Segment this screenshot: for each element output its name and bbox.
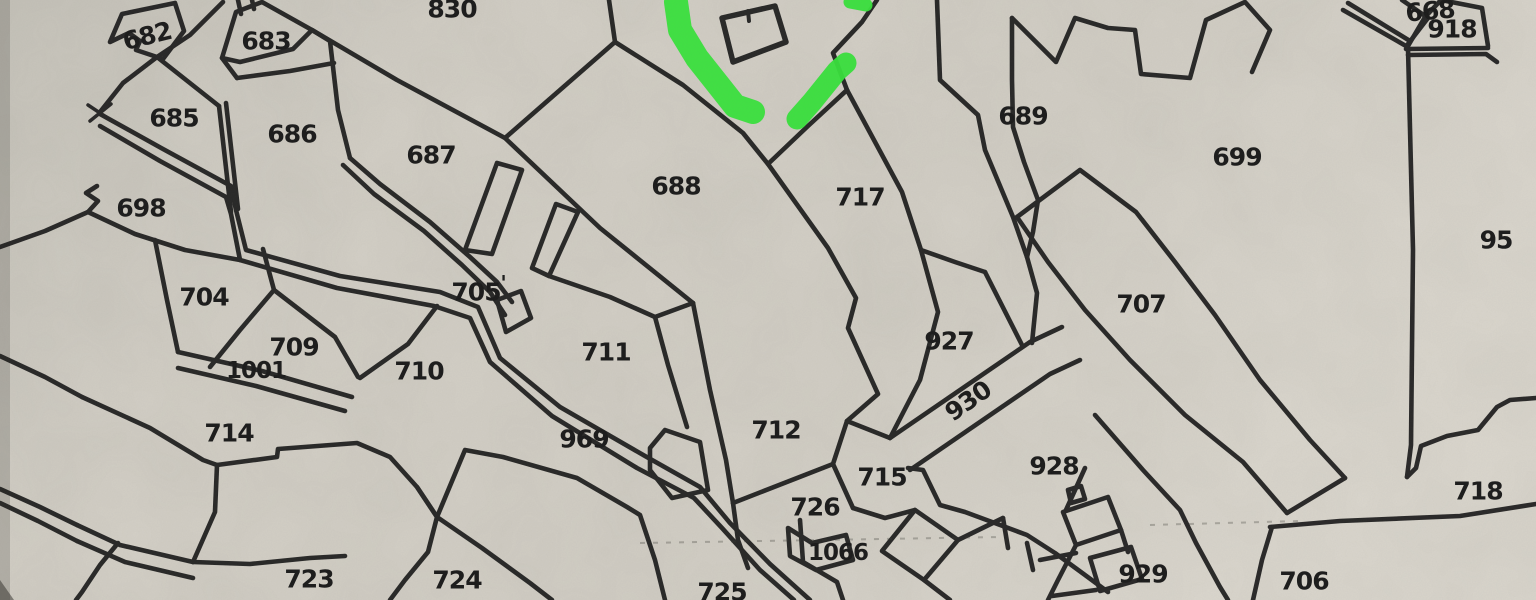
map-scan: 6826838306689186856866876886896997176989…: [0, 0, 1536, 600]
scan-edge-shadow: [0, 0, 10, 600]
paper-grain-texture: [0, 0, 1536, 600]
cadastral-map-svg: 6826838306689186856866876886896997176989…: [0, 0, 1536, 600]
